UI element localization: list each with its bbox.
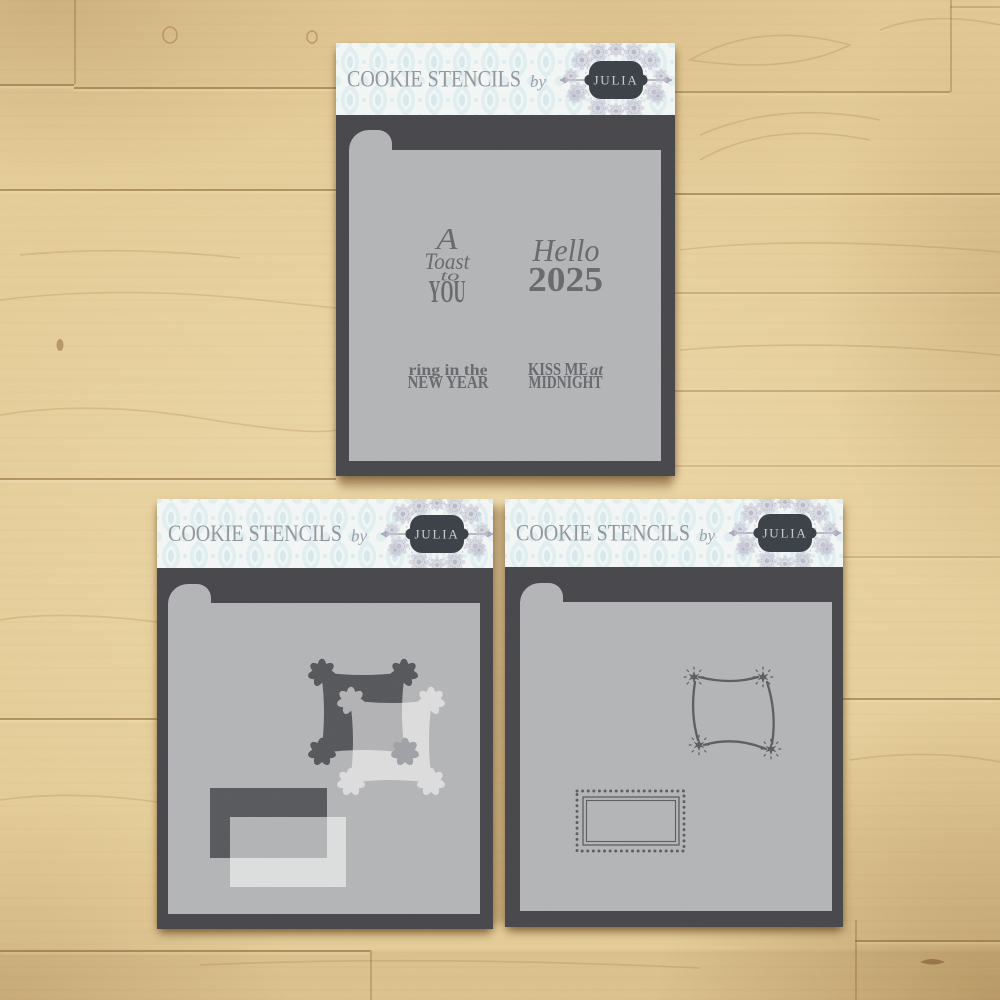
svg-text:YOU: YOU	[429, 274, 466, 309]
svg-text:MIDNIGHT: MIDNIGHT	[529, 372, 603, 392]
svg-text:2025: 2025	[528, 260, 603, 299]
svg-text:NEW YEAR: NEW YEAR	[408, 372, 489, 392]
